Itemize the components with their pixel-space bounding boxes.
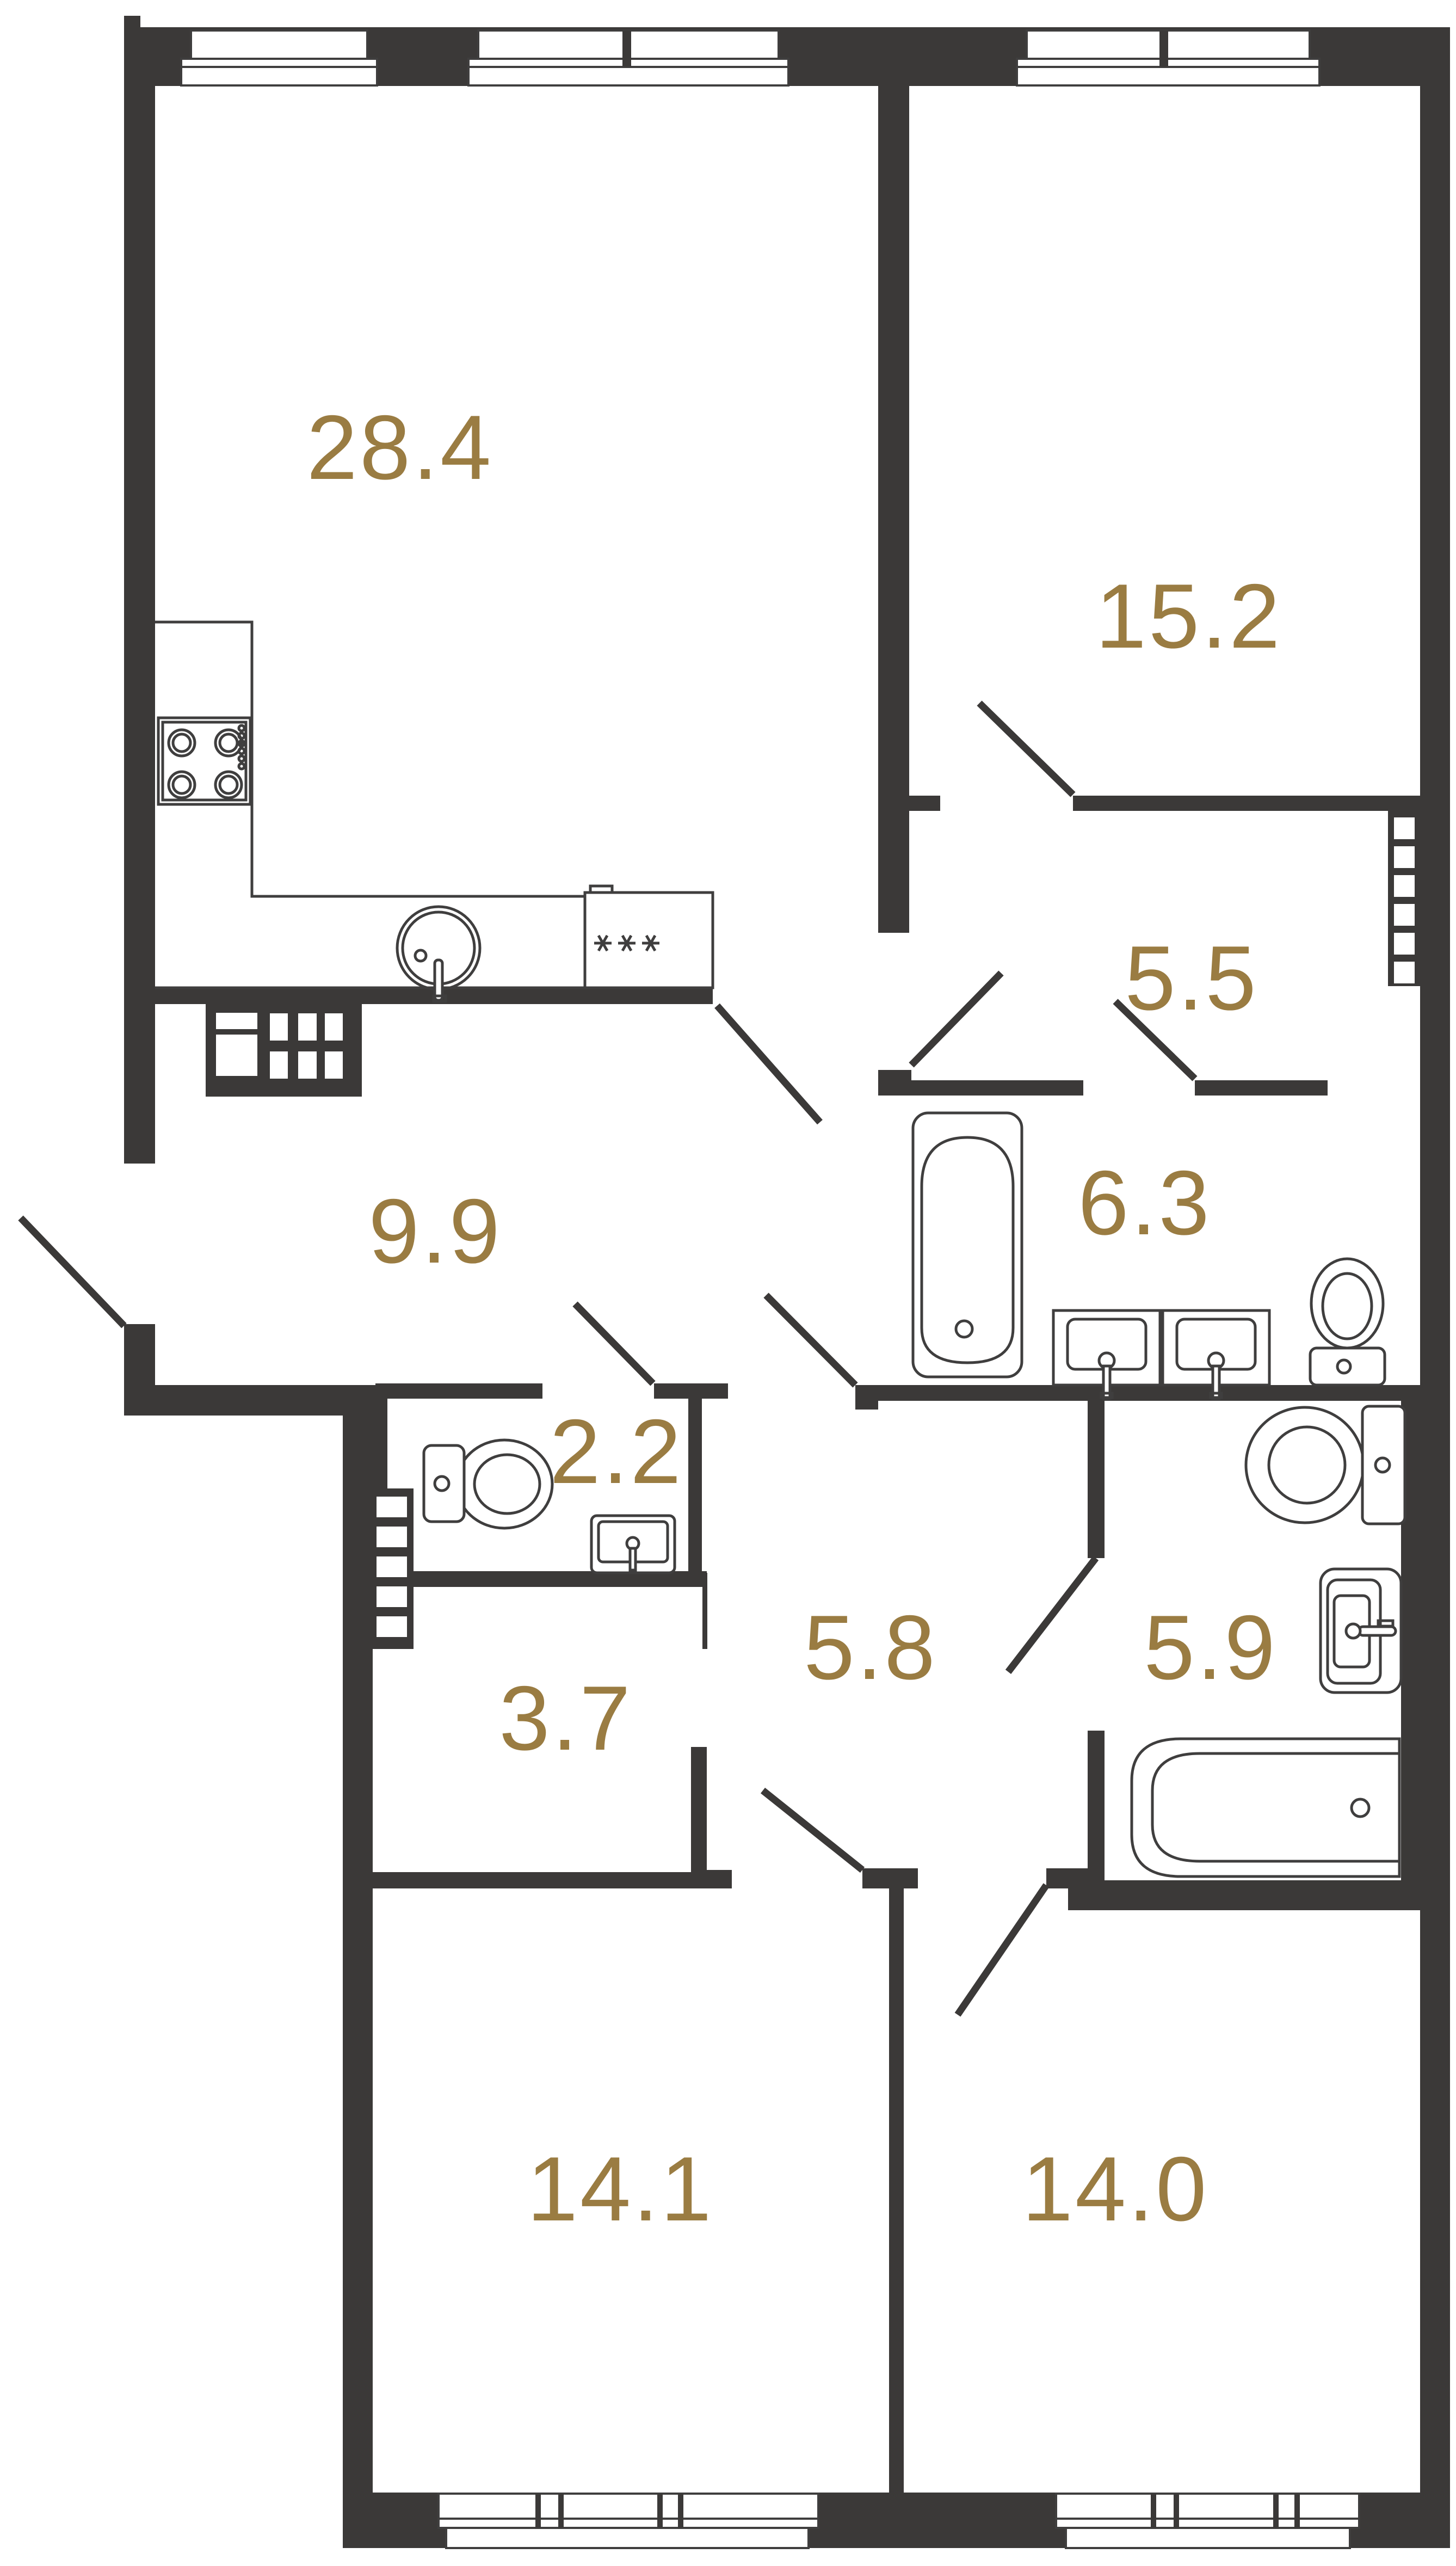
wall-divider-hall-bath59-upper xyxy=(1088,1401,1105,1558)
cooktop-icon xyxy=(158,718,250,804)
bathtub-vertical-icon xyxy=(913,1113,1022,1377)
radiator-icon xyxy=(1388,811,1420,986)
window-mullion xyxy=(1151,2494,1156,2528)
window-bottom-1 xyxy=(439,2494,818,2548)
wall-storage-bottom xyxy=(373,1872,707,1888)
windows-top xyxy=(181,30,1319,85)
room-label-wc: 2.2 xyxy=(550,1400,683,1503)
wall-divider-bedrooms xyxy=(889,1888,904,2493)
window-top-3 xyxy=(1017,30,1319,85)
towel-radiator-icon xyxy=(370,1488,414,1649)
wall-entry-bottom xyxy=(124,1385,375,1416)
bathtub-horizontal-icon xyxy=(1132,1739,1399,1876)
wall-divider-living-bedroom xyxy=(878,86,909,933)
door-entrance xyxy=(21,1218,124,1326)
wall-jamb-corridor-hallway xyxy=(878,1070,911,1096)
room-label-hallway-upper: 5.5 xyxy=(1125,927,1258,1029)
room-label-bedroom-bottom-left: 14.1 xyxy=(527,2138,714,2240)
wall-hall-bottom-tcap xyxy=(862,1868,918,1888)
wall-divider-hall-bath59-lower xyxy=(1088,1731,1105,1888)
wall-bath63-top-right xyxy=(1195,1080,1328,1096)
window-mullion xyxy=(678,2494,683,2528)
room-label-bathroom-large: 6.3 xyxy=(1078,1152,1212,1254)
wall-bath59-bottom xyxy=(1068,1880,1450,1910)
wall-bedroom15-bottom xyxy=(1073,796,1420,811)
room-label-hall-lower: 5.8 xyxy=(804,1596,937,1699)
floor-plan-canvas: 28.4 15.2 5.5 6.3 9.9 2.2 5.8 5.9 3.7 14… xyxy=(0,0,1456,2566)
wall-top-corner-step xyxy=(124,16,140,27)
wall-wc-right xyxy=(688,1383,702,1573)
door-bedroom140 xyxy=(958,1885,1046,2015)
wall-left-upper xyxy=(124,27,155,1164)
room-label-bathroom-small: 5.9 xyxy=(1144,1596,1278,1699)
room-label-storage: 3.7 xyxy=(499,1667,633,1769)
washbasin-icon xyxy=(1163,1310,1269,1399)
cabinet-grid-icon xyxy=(206,1002,362,1097)
wall-storage-right-lower xyxy=(691,1747,707,1886)
washbasin-icon xyxy=(591,1516,675,1573)
window-mullion xyxy=(657,2494,663,2528)
door-corridor-hallway xyxy=(911,973,1001,1065)
toilet-icon xyxy=(1246,1406,1405,1524)
window-top-1 xyxy=(181,30,377,85)
washbasin-icon xyxy=(1321,1569,1401,1693)
window-mullion xyxy=(558,2494,564,2528)
wall-wc-top-left xyxy=(375,1383,542,1399)
window-mullion xyxy=(535,2494,541,2528)
outer-walls xyxy=(124,16,1450,2548)
wall-left-lower xyxy=(343,1416,373,2548)
fridge-icon xyxy=(585,886,713,988)
window-mullion xyxy=(1294,2494,1300,2528)
door-kitchen-corridor xyxy=(717,1006,820,1122)
window-mullion xyxy=(1159,30,1168,67)
wall-bedroom15-bottom-stub xyxy=(909,796,940,811)
window-mullion xyxy=(622,30,631,67)
washbasin-icon xyxy=(1053,1310,1160,1399)
toilet-icon xyxy=(424,1440,552,1528)
door-bedroom141 xyxy=(763,1790,862,1870)
window-mullion xyxy=(1174,2494,1179,2528)
window-top-2 xyxy=(468,30,788,85)
kitchen-fixtures xyxy=(155,622,713,1097)
door-bedroom15 xyxy=(979,703,1073,795)
toilet-icon xyxy=(1310,1259,1385,1385)
room-label-kitchen-living: 28.4 xyxy=(307,396,493,499)
room-label-bedroom-bottom-right: 14.0 xyxy=(1022,2138,1209,2240)
window-bottom-2 xyxy=(1056,2494,1359,2548)
door-wc xyxy=(575,1304,653,1383)
wall-hall-bottom-stub xyxy=(707,1870,732,1888)
wall-bath63-bottom xyxy=(855,1385,1450,1401)
floor-plan-page: 28.4 15.2 5.5 6.3 9.9 2.2 5.8 5.9 3.7 14… xyxy=(0,0,1456,2566)
wall-right xyxy=(1420,27,1450,2548)
door-bath59 xyxy=(1008,1558,1096,1672)
wall-bath63-top-left xyxy=(911,1080,1083,1096)
room-label-corridor: 9.9 xyxy=(368,1180,502,1282)
window-mullion xyxy=(1273,2494,1279,2528)
wall-bath63-bottom-endcap xyxy=(855,1385,878,1410)
door-corridor-hall xyxy=(766,1295,855,1385)
room-label-bedroom-top-right: 15.2 xyxy=(1096,565,1282,667)
